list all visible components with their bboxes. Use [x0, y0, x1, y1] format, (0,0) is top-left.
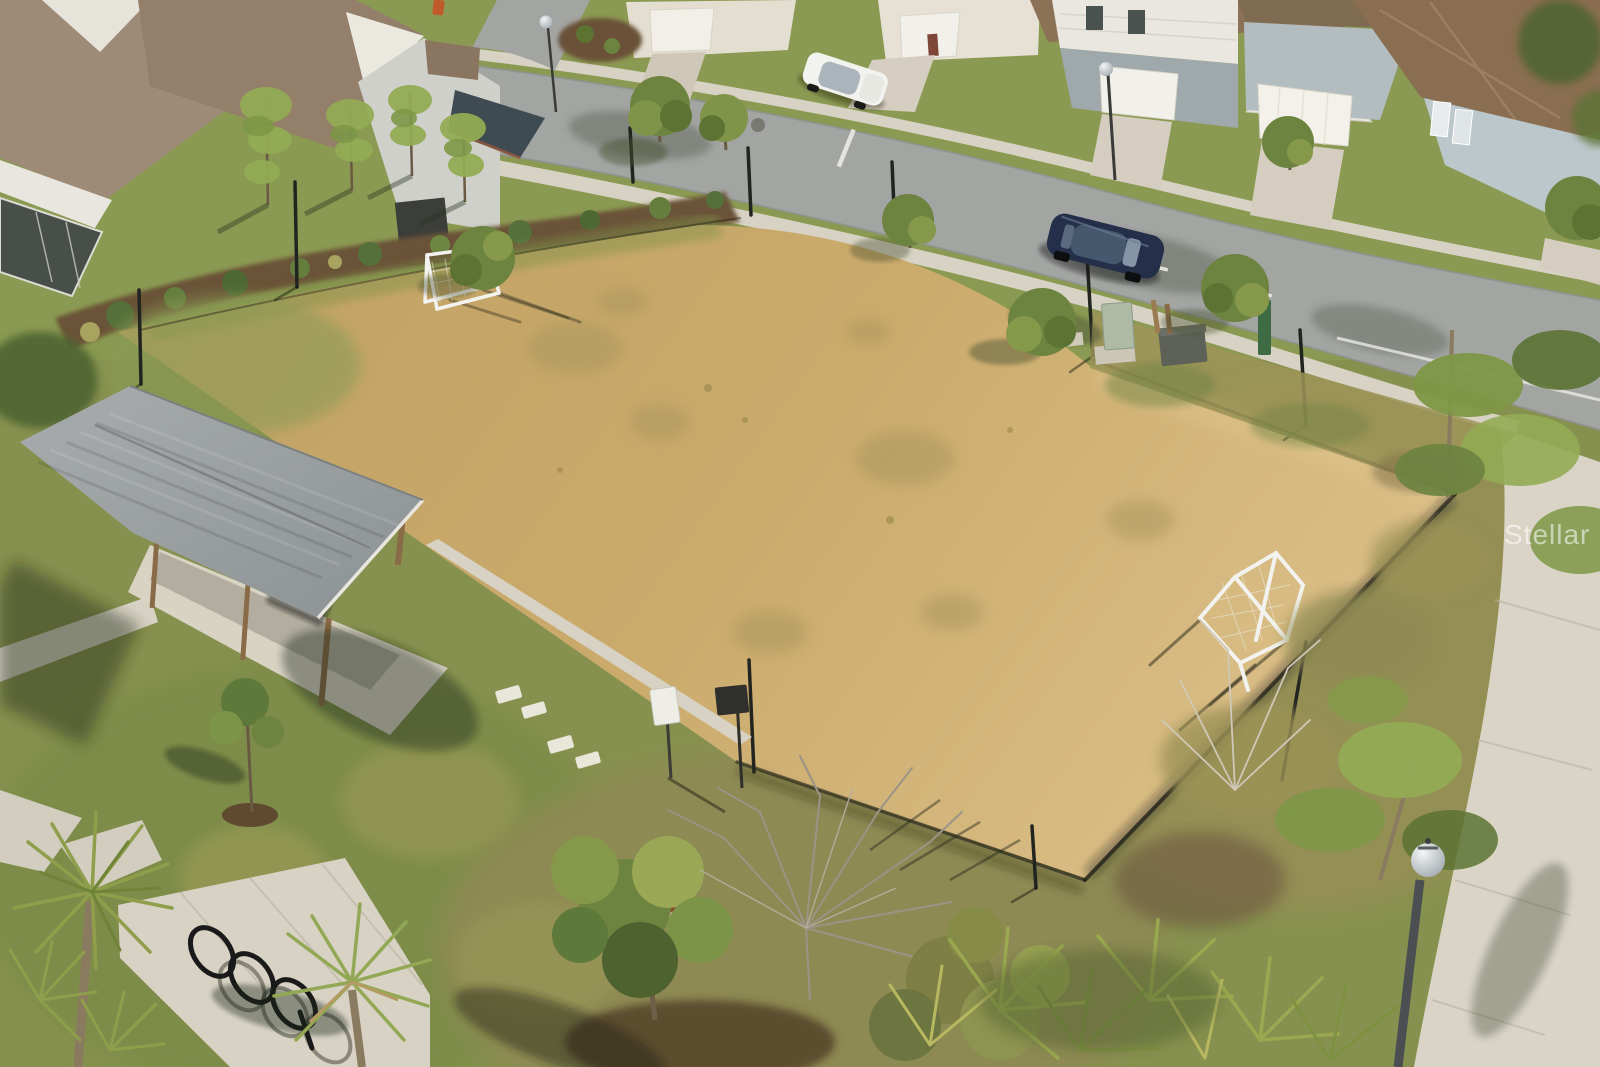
listing-photo: Stellar MLS	[0, 0, 1600, 1067]
park-sign	[650, 686, 681, 725]
utility-cabinet	[1101, 302, 1134, 350]
aerial-photo-canvas	[0, 0, 1600, 1067]
sign-back	[715, 684, 750, 715]
house-window	[1430, 101, 1450, 137]
garage-door	[650, 8, 714, 52]
house-window	[1452, 109, 1472, 145]
manhole-cover	[751, 118, 765, 132]
stellar-mls-watermark: Stellar MLS	[1504, 519, 1600, 551]
trash-bin	[432, 0, 445, 16]
